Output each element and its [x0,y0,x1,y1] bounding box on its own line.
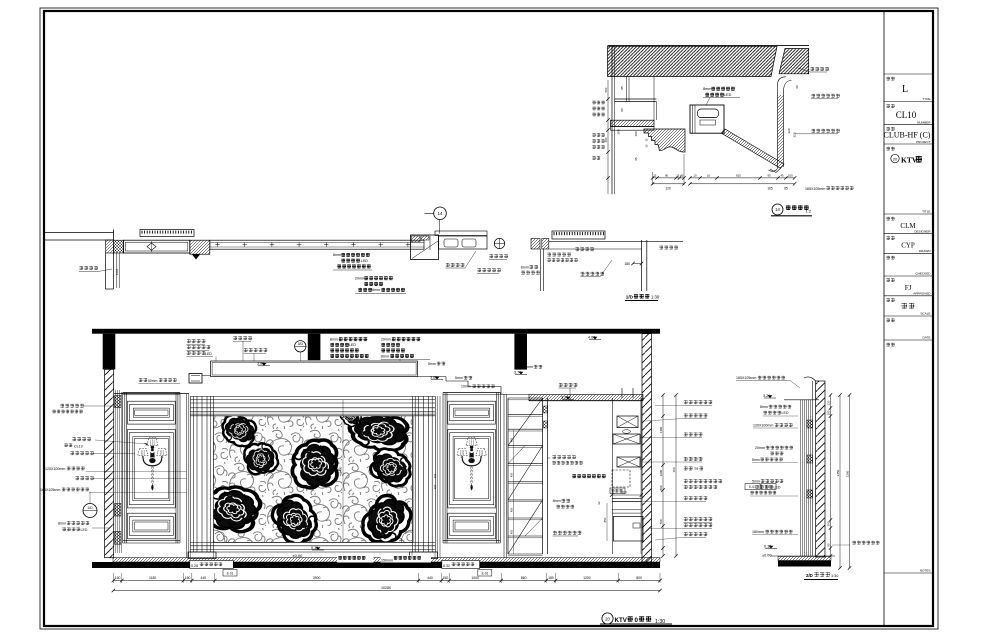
svg-text:20mm: 20mm [381,338,391,342]
svg-text:150: 150 [672,467,676,472]
svg-text:8mm: 8mm [58,522,66,526]
svg-text:LED: LED [205,352,212,356]
svg-text:5mm: 5mm [428,362,436,366]
svg-text:8mm: 8mm [372,288,380,292]
svg-text:LED: LED [774,485,781,489]
svg-text:LED: LED [724,93,732,97]
svg-text:450: 450 [510,529,514,534]
svg-text:50mm: 50mm [148,379,158,383]
svg-text:1180: 1180 [149,576,156,580]
svg-text:20mm: 20mm [355,276,365,280]
svg-text:180mm: 180mm [752,530,764,534]
svg-text:1:2: 1:2 [806,209,812,214]
svg-text:TYPE: TYPE [922,97,930,101]
svg-text:PROJECT: PROJECT [916,140,931,144]
svg-text:8mm: 8mm [381,354,389,358]
svg-text:220: 220 [787,128,791,133]
svg-text:±0.00: ±0.00 [762,553,771,557]
svg-text:45: 45 [780,174,784,178]
svg-text:SCALE: SCALE [920,312,930,316]
svg-text:1/D: 1/D [626,295,634,300]
svg-text:8mm: 8mm [703,87,711,91]
svg-text:20: 20 [893,156,898,161]
svg-text:2400: 2400 [339,466,343,473]
svg-text:120: 120 [665,187,671,191]
svg-text:150: 150 [442,576,448,580]
svg-text:800: 800 [636,576,642,580]
svg-text:LED: LED [81,528,88,532]
svg-text:90: 90 [767,174,771,178]
svg-text:120X100mm: 120X100mm [753,424,773,428]
svg-text:160: 160 [115,576,121,580]
svg-text:1164: 1164 [115,268,119,275]
svg-text:±0.00: ±0.00 [292,553,303,558]
svg-text:440: 440 [200,576,206,580]
svg-text:65: 65 [784,187,788,191]
svg-text:100: 100 [826,410,830,415]
svg-text:65: 65 [634,157,638,161]
svg-text:165X105mm: 165X105mm [736,376,756,380]
svg-text:4.60: 4.60 [588,335,595,339]
svg-text:TITLE: TITLE [922,210,930,214]
svg-text:130: 130 [433,473,437,478]
svg-text:8mm: 8mm [521,265,529,269]
svg-text:40: 40 [680,174,684,178]
svg-text:80: 80 [620,108,624,112]
svg-text:1200: 1200 [583,576,591,580]
svg-text:500: 500 [604,87,608,92]
svg-text:APPROVED: APPROVED [913,291,931,295]
svg-text:450: 450 [510,472,514,477]
svg-text:3.20: 3.20 [763,394,770,398]
svg-text:10: 10 [707,174,711,178]
svg-text:5mm: 5mm [455,376,463,380]
svg-text:90: 90 [826,543,830,547]
svg-text:KTV: KTV [901,156,918,165]
svg-text:1400: 1400 [659,426,663,433]
svg-text:E-01: E-01 [749,485,756,489]
svg-text:CHECKED: CHECKED [915,272,931,276]
svg-text:DESIGNER: DESIGNER [914,229,931,233]
svg-text:450: 450 [510,507,514,512]
svg-text:165X105mm: 165X105mm [805,187,825,191]
svg-text:DRAWN: DRAWN [919,249,931,253]
svg-text:2/D: 2/D [806,573,813,578]
svg-text:20mm: 20mm [755,446,765,450]
svg-text:850: 850 [603,517,607,522]
svg-text:CYP: CYP [901,242,915,250]
svg-text:165X105mm: 165X105mm [40,488,60,492]
svg-text:3250: 3250 [845,470,849,477]
svg-text:440: 440 [427,576,433,580]
svg-text:0.32: 0.32 [443,564,450,568]
svg-text:3.70: 3.70 [514,370,521,374]
svg-text:3/D: 3/D [298,342,304,346]
svg-text:LED: LED [349,343,356,347]
svg-text:0: 0 [635,617,639,624]
svg-text:180: 180 [548,576,554,580]
svg-text:120X100mm: 120X100mm [45,467,65,471]
svg-text:DATE: DATE [922,336,930,340]
svg-text:100: 100 [788,174,793,178]
svg-text:KTV: KTV [615,617,628,624]
svg-text:60: 60 [795,85,799,89]
svg-text:20: 20 [605,616,610,621]
svg-text:600: 600 [621,491,627,495]
svg-text:NUMBER: NUMBER [917,121,931,125]
svg-text:180: 180 [624,262,630,266]
svg-text:3200: 3200 [659,469,663,476]
svg-text:L: L [902,84,908,95]
svg-text:3.88: 3.88 [257,362,264,366]
svg-text:8mm: 8mm [760,405,768,409]
svg-text:NOTES: NOTES [920,569,931,573]
svg-text:700: 700 [659,519,663,524]
svg-text:CL10: CL10 [896,110,917,120]
svg-text:450: 450 [510,437,514,442]
svg-text:0.15: 0.15 [311,546,318,550]
svg-text:300: 300 [826,521,830,526]
svg-text:165: 165 [767,187,773,191]
svg-text:3900: 3900 [313,576,321,580]
svg-text:FJ: FJ [905,284,912,292]
svg-text:10280: 10280 [381,586,391,590]
svg-text:CLUB-HF (C): CLUB-HF (C) [884,131,931,140]
svg-text:14: 14 [437,211,443,216]
svg-text:8mm: 8mm [553,499,561,503]
svg-text:320: 320 [793,132,797,137]
svg-text:LED: LED [361,259,368,263]
svg-text:5mm: 5mm [752,480,760,484]
svg-text:3.65: 3.65 [430,375,437,379]
svg-text:1:30: 1:30 [831,574,838,578]
svg-text:220: 220 [433,484,437,489]
svg-text:825: 825 [736,174,741,178]
svg-text:T5: T5 [694,467,698,471]
svg-text:10: 10 [693,174,697,178]
svg-text:0.28: 0.28 [191,564,198,568]
svg-text:10mm: 10mm [461,385,471,389]
svg-text:860: 860 [521,576,527,580]
svg-text:3.20: 3.20 [561,395,568,399]
svg-text:800: 800 [659,485,663,490]
svg-text:LED: LED [782,411,789,415]
svg-text:15: 15 [653,174,657,178]
svg-text:150mm: 150mm [381,559,393,563]
svg-text:90: 90 [665,174,669,178]
svg-text:1:30: 1:30 [651,295,660,300]
svg-text:5mm: 5mm [525,365,533,369]
svg-text:0.15: 0.15 [764,544,771,548]
svg-text:100: 100 [634,131,638,136]
svg-text:E-01: E-01 [227,572,234,576]
svg-text:85: 85 [620,86,624,90]
svg-text:8mm: 8mm [330,338,338,342]
svg-text:1000: 1000 [471,576,479,580]
svg-text:14: 14 [775,207,780,212]
svg-text:120: 120 [826,400,830,405]
svg-text:300: 300 [617,129,621,134]
svg-text:1/D: 1/D [87,506,93,510]
svg-text:3450: 3450 [836,469,840,476]
svg-text:8mm: 8mm [333,253,341,257]
svg-text:160: 160 [185,576,191,580]
svg-text:8mm: 8mm [752,458,760,462]
svg-text:E-01: E-01 [482,572,489,576]
svg-text:CL19: CL19 [74,445,83,449]
